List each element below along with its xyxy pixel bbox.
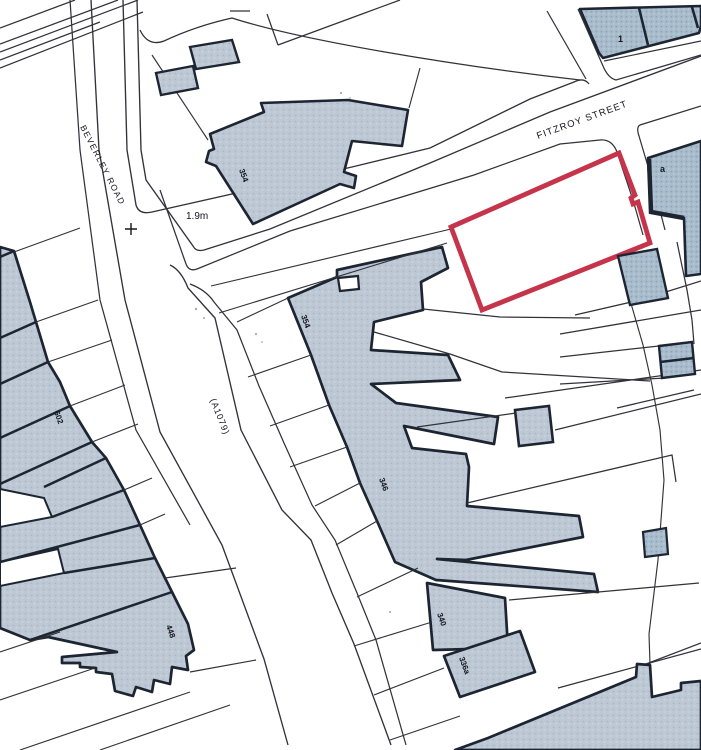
svg-text:1.9m: 1.9m (186, 211, 208, 222)
svg-text:1: 1 (618, 34, 623, 44)
